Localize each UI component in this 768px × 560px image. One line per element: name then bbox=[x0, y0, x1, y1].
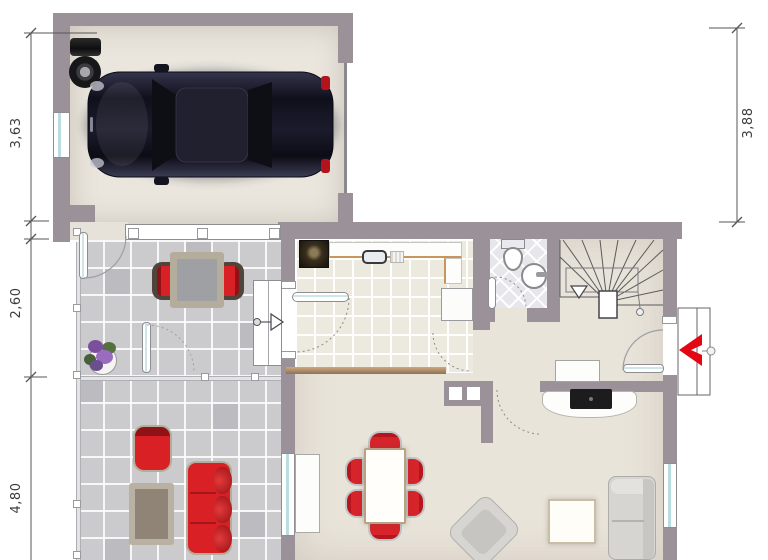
chimney-flue bbox=[449, 387, 462, 400]
living-west-window bbox=[281, 453, 295, 536]
entrance bbox=[678, 308, 715, 395]
garage-door bbox=[344, 63, 347, 193]
dimension-terrace-upper: 2,60 bbox=[10, 283, 24, 323]
dimension-garage-depth: 3,63 bbox=[10, 113, 24, 153]
railing-post bbox=[73, 304, 81, 312]
railing-post bbox=[251, 373, 259, 381]
dining-chair bbox=[345, 489, 364, 518]
gray-sofa bbox=[608, 476, 656, 560]
terrace-gate bbox=[142, 322, 151, 373]
sofa-back-cushion bbox=[214, 467, 232, 494]
hall-cabinet bbox=[555, 360, 600, 382]
dining-table bbox=[364, 448, 406, 524]
window-mullion bbox=[269, 228, 280, 239]
sofa-back-cushion bbox=[214, 525, 232, 552]
radiator bbox=[295, 454, 320, 533]
chimney-flue bbox=[467, 387, 480, 400]
wc-south-wall bbox=[480, 308, 495, 322]
house-east-wall bbox=[663, 239, 677, 323]
chimney-wall-stub bbox=[481, 406, 493, 443]
fridge bbox=[441, 288, 473, 321]
railing-post bbox=[73, 371, 81, 379]
entrance-porch bbox=[678, 308, 710, 395]
house-east-wall bbox=[663, 528, 677, 560]
tv bbox=[570, 389, 612, 409]
terrace-tile-dark bbox=[213, 404, 238, 429]
terrace-railing-west bbox=[76, 242, 81, 560]
kitchen-dining-divider bbox=[286, 367, 446, 374]
terrace-tile-dark bbox=[240, 512, 265, 537]
living-east-window bbox=[663, 463, 677, 528]
terrace-table bbox=[170, 252, 224, 308]
dining-chair bbox=[368, 522, 402, 541]
sofa-seat-line bbox=[612, 520, 644, 522]
outdoor-rug bbox=[129, 483, 174, 545]
coffee-table bbox=[548, 499, 596, 544]
door-jamb bbox=[662, 316, 677, 324]
window-mullion bbox=[197, 228, 208, 239]
window-mullion bbox=[128, 228, 139, 239]
kitchen-counter-return bbox=[444, 258, 462, 284]
entrance-arrow-icon bbox=[679, 334, 702, 366]
house-north-wall bbox=[278, 222, 682, 239]
dining-chair bbox=[406, 489, 425, 518]
garage-west-window bbox=[53, 112, 70, 158]
sofa-seat-line bbox=[190, 492, 216, 494]
dining-chair bbox=[406, 457, 425, 486]
kitchen-entry-marker bbox=[253, 280, 282, 366]
garage-east-wall-stub bbox=[338, 193, 353, 222]
garage-east-wall-stub bbox=[338, 13, 353, 63]
garage-floor bbox=[70, 26, 344, 224]
garage-north-wall bbox=[53, 13, 353, 26]
red-armchair bbox=[135, 427, 170, 470]
sofa-back-cushion bbox=[214, 496, 232, 523]
railing-post bbox=[201, 373, 209, 381]
dimension-right-side: 3,88 bbox=[742, 103, 756, 143]
red-sofa bbox=[186, 461, 232, 555]
entrance-door bbox=[623, 364, 664, 373]
sink bbox=[362, 250, 387, 264]
stove bbox=[299, 240, 329, 268]
sofa-back bbox=[643, 479, 654, 559]
garage-south-wall bbox=[53, 205, 95, 222]
dimension-terrace-lower: 4,80 bbox=[10, 478, 24, 518]
sofa-seat-line bbox=[190, 522, 216, 524]
faucet bbox=[536, 272, 548, 277]
house-west-wall bbox=[281, 536, 295, 560]
dining-chair bbox=[345, 457, 364, 486]
wc-south-wall bbox=[527, 308, 560, 322]
garage-terrace-door bbox=[79, 232, 88, 279]
terrace-tile-dark bbox=[105, 269, 130, 294]
railing-post bbox=[73, 551, 81, 559]
tv-logo bbox=[589, 397, 593, 401]
armchair-cushion bbox=[459, 507, 508, 556]
spare-tire bbox=[70, 38, 101, 56]
house-east-wall bbox=[663, 375, 677, 463]
drainer bbox=[390, 251, 404, 263]
kitchen-terrace-door bbox=[292, 292, 349, 302]
plant-flowers bbox=[90, 360, 103, 371]
terrace-tile-dark bbox=[105, 539, 130, 560]
entry-marker-divider bbox=[268, 281, 269, 365]
floor-plan: 3,63 2,60 4,80 3,88 bbox=[0, 0, 768, 560]
railing-post bbox=[73, 500, 81, 508]
wc-door bbox=[488, 277, 496, 309]
wheel-icon bbox=[69, 56, 101, 88]
garage-south-window bbox=[125, 224, 281, 240]
plant bbox=[84, 338, 124, 378]
